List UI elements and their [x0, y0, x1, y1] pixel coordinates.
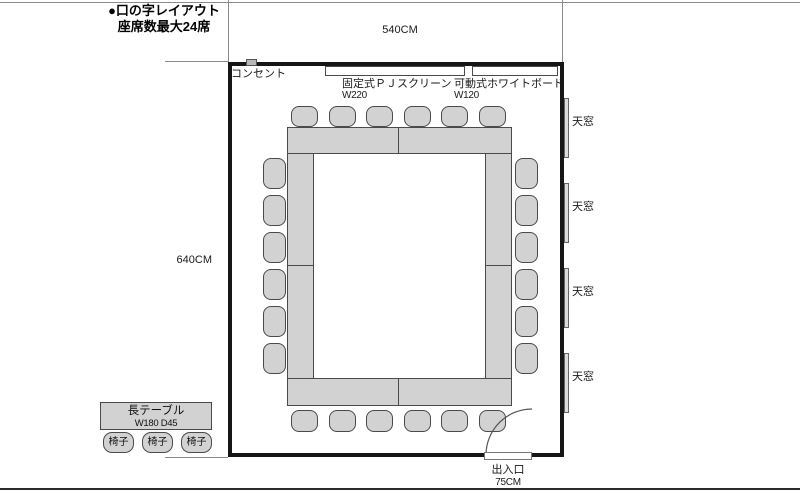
chair [515, 232, 538, 263]
chair [404, 106, 431, 127]
chair [263, 195, 286, 226]
bottom-border-line [0, 488, 800, 490]
whiteboard [472, 66, 558, 76]
table-left-lower [287, 265, 314, 379]
chair [515, 158, 538, 189]
legend-long-table: 長テーブル W180 D45 [100, 402, 212, 430]
table-bottom-right [398, 378, 512, 406]
skylight-window [564, 268, 569, 328]
skylight-window [564, 353, 569, 413]
chair [479, 106, 506, 127]
chair [263, 306, 286, 337]
table-top-right [398, 127, 512, 154]
chair [329, 410, 356, 432]
skylight-label: 天窓 [572, 116, 602, 130]
skylight-label: 天窓 [572, 371, 602, 385]
height-dimension-label: 640CM [150, 254, 212, 266]
legend-chair: 椅子 [181, 432, 212, 453]
whiteboard-label: 可動式ホワイトボード [454, 78, 564, 90]
skylight-label: 天窓 [572, 286, 602, 300]
chair [515, 306, 538, 337]
chair [515, 269, 538, 300]
table-right-lower [485, 265, 512, 379]
chair [515, 343, 538, 374]
right-extension-line [562, 0, 563, 62]
legend-chair: 椅子 [142, 432, 173, 453]
door-opening [484, 452, 532, 460]
chair [263, 269, 286, 300]
chair [404, 410, 431, 432]
chair [329, 106, 356, 127]
plan-title-line2: 座席数最大24席 [100, 19, 228, 35]
plan-title-line1: ●口の字レイアウト [100, 3, 228, 19]
chair [441, 410, 468, 432]
projector-screen-label: 固定式ＰＪスクリーン [342, 78, 451, 90]
door-size: 75CM [484, 477, 532, 488]
chair [291, 106, 318, 127]
legend-table-label: 長テーブル [101, 404, 211, 418]
chair [263, 343, 286, 374]
chair [263, 158, 286, 189]
table-right-upper [485, 153, 512, 266]
whiteboard-size: W120 [454, 90, 479, 101]
legend-chair: 椅子 [103, 432, 134, 453]
power-outlet-symbol [246, 59, 257, 66]
chair [263, 232, 286, 263]
left-extension-line [228, 0, 229, 62]
bottom-left-extension-line [165, 457, 228, 458]
table-left-upper [287, 153, 314, 266]
chair [366, 106, 393, 127]
table-bottom-left [287, 378, 399, 406]
skylight-label: 天窓 [572, 201, 602, 215]
chair [515, 195, 538, 226]
chair [441, 106, 468, 127]
projector-screen-size: W220 [342, 90, 367, 101]
top-left-extension-line [165, 61, 228, 62]
legend-table-size: W180 D45 [101, 418, 211, 429]
plan-title: ●口の字レイアウト 座席数最大24席 [100, 3, 228, 34]
table-top-left [287, 127, 399, 154]
skylight-window [564, 183, 569, 243]
chair [479, 410, 506, 432]
outlet-label: コンセント [231, 68, 286, 80]
chair [366, 410, 393, 432]
chair [291, 410, 318, 432]
skylight-window [564, 98, 569, 158]
width-dimension-label: 540CM [360, 24, 440, 36]
floor-plan: ●口の字レイアウト 座席数最大24席 540CM 640CM コンセント 固定式… [0, 0, 800, 494]
projector-screen [325, 66, 465, 76]
door-label: 出入口 [484, 464, 532, 476]
